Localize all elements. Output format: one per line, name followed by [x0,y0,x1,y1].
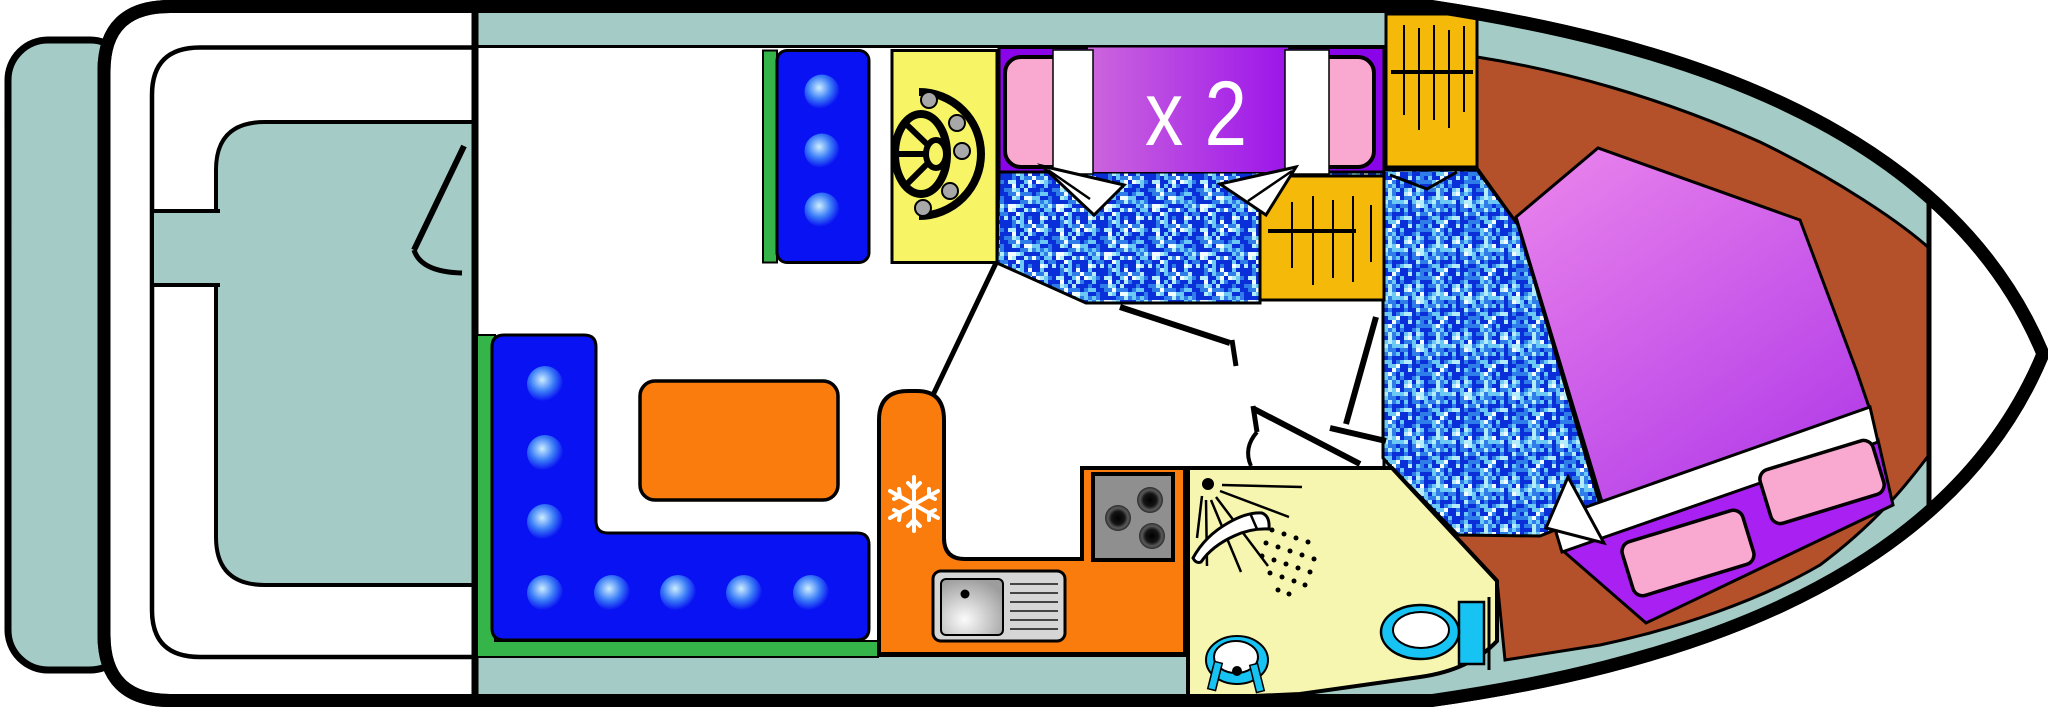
svg-text:x 2: x 2 [1145,63,1247,165]
